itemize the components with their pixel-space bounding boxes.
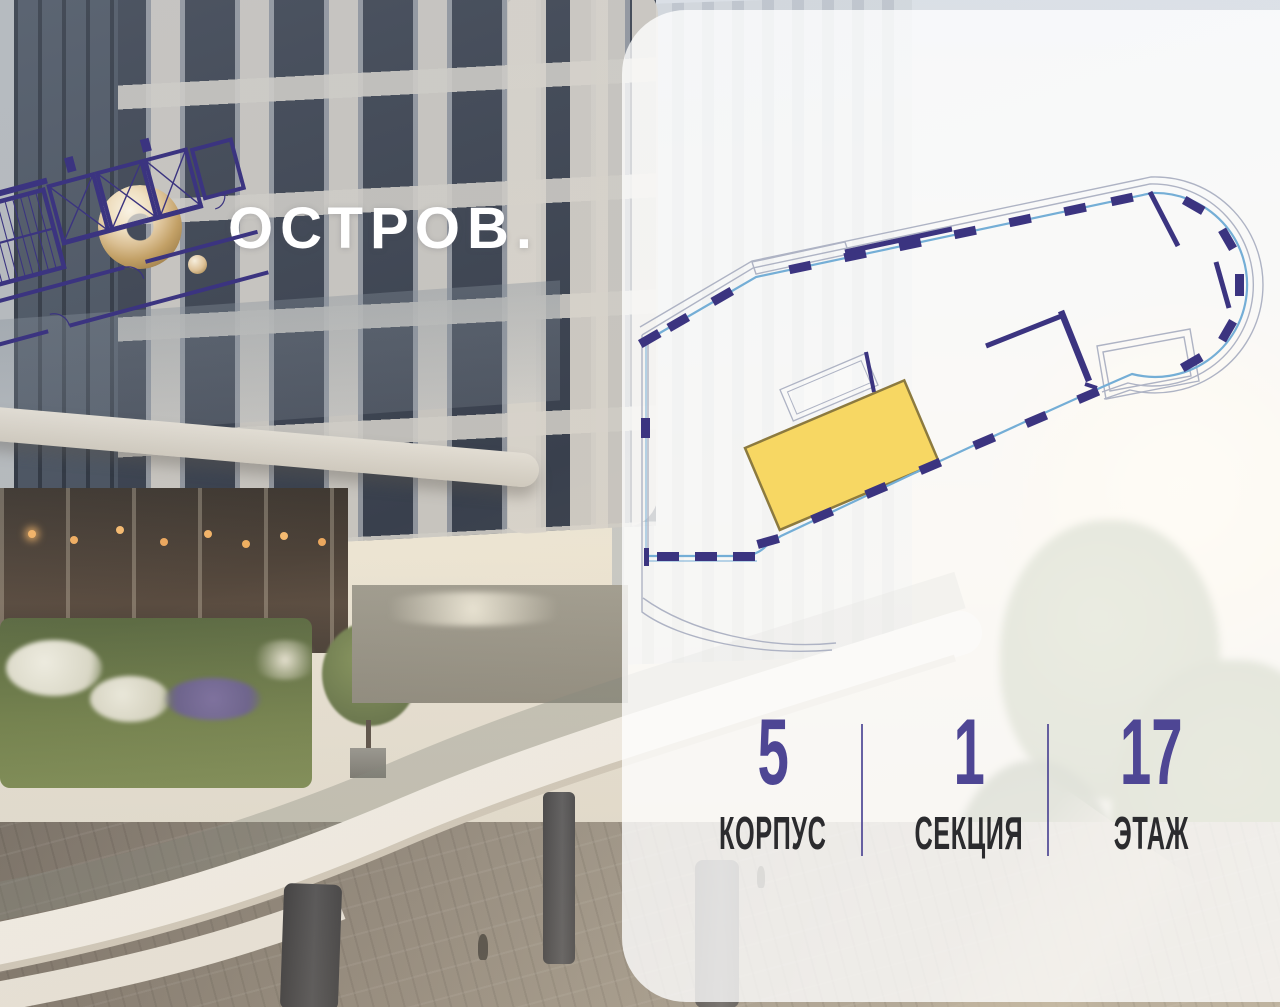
stat-korpus: 5 КОРПУС bbox=[675, 714, 870, 864]
etazh-label: ЭТАЖ bbox=[1068, 814, 1235, 852]
stats-divider bbox=[861, 724, 863, 856]
sektsiya-value: 1 bbox=[870, 714, 1068, 790]
sektsiya-label: СЕКЦИЯ bbox=[870, 814, 1068, 852]
unit-stats: 5 КОРПУС 1 СЕКЦИЯ 17 ЭТАЖ bbox=[675, 714, 1235, 864]
logo-dot-icon bbox=[188, 255, 207, 274]
korpus-value: 5 bbox=[675, 714, 870, 790]
stat-sektsiya: 1 СЕКЦИЯ bbox=[870, 714, 1068, 864]
stat-etazh: 17 ЭТАЖ bbox=[1068, 714, 1235, 864]
logo-text: ОСТРОВ. bbox=[228, 203, 539, 255]
etazh-value: 17 bbox=[1068, 714, 1235, 790]
stats-divider bbox=[1047, 724, 1049, 856]
screen: ОСТРОВ. bbox=[0, 0, 1280, 1007]
ostrov-logo-icon bbox=[98, 185, 182, 269]
korpus-label: КОРПУС bbox=[675, 814, 870, 852]
